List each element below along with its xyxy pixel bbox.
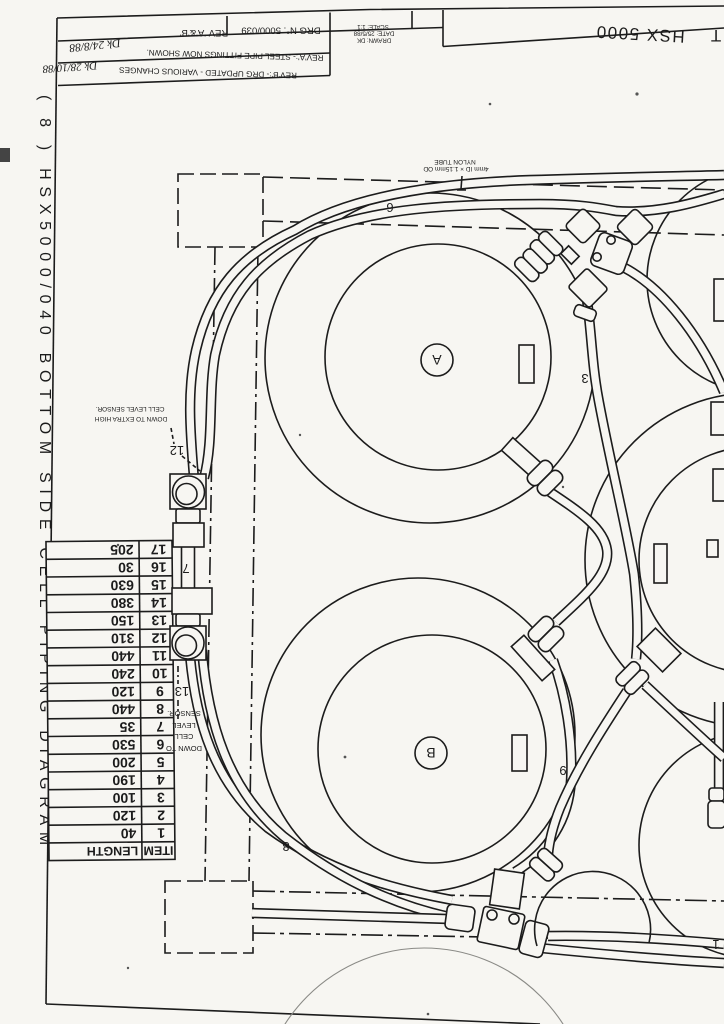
svg-text:13: 13: [175, 684, 189, 699]
svg-text:7: 7: [182, 561, 189, 576]
svg-text:17: 17: [150, 542, 166, 558]
svg-text:15: 15: [151, 577, 167, 593]
svg-text:T: T: [711, 26, 721, 45]
svg-text:A: A: [432, 352, 442, 368]
svg-text:100: 100: [112, 790, 136, 806]
svg-text:DRG N°. 5000/039: DRG N°. 5000/039: [241, 25, 320, 36]
svg-text:B: B: [426, 745, 435, 761]
svg-text:310: 310: [111, 631, 135, 647]
svg-text:120: 120: [111, 684, 135, 700]
svg-text:7: 7: [156, 719, 164, 735]
svg-text:LEVEL: LEVEL: [172, 721, 195, 730]
svg-text:205: 205: [110, 542, 134, 558]
svg-text:1: 1: [157, 825, 165, 841]
svg-text:DATE: 25/5/88: DATE: 25/5/88: [353, 29, 394, 36]
svg-text:CELL: CELL: [175, 732, 194, 741]
svg-text:9: 9: [156, 683, 164, 699]
svg-text:8: 8: [282, 839, 289, 854]
svg-text:630: 630: [110, 577, 134, 593]
svg-text:240: 240: [111, 666, 135, 682]
svg-text:30: 30: [118, 560, 134, 576]
svg-text:40: 40: [120, 825, 136, 841]
svg-text:190: 190: [112, 772, 136, 788]
svg-text:LENGTH: LENGTH: [87, 844, 139, 858]
svg-text:6: 6: [386, 200, 393, 215]
svg-text:14: 14: [151, 595, 167, 611]
svg-text:NYLON TUBE: NYLON TUBE: [434, 158, 476, 165]
svg-text:440: 440: [111, 701, 135, 717]
svg-text:2: 2: [157, 807, 165, 823]
svg-text:530: 530: [112, 737, 136, 753]
svg-text:REV 'A'&'B': REV 'A'&'B': [180, 27, 229, 38]
svg-text:380: 380: [110, 595, 134, 611]
svg-text:200: 200: [112, 755, 136, 771]
svg-text:12: 12: [170, 443, 184, 458]
svg-text:4: 4: [157, 772, 165, 788]
svg-text:8: 8: [156, 701, 164, 717]
svg-text:CELL LEVEL SENSOR.: CELL LEVEL SENSOR.: [95, 405, 164, 412]
svg-text:DOWN TO: DOWN TO: [166, 744, 202, 753]
svg-text:REV'A':- STEEL PIPE FITTINGS N: REV'A':- STEEL PIPE FITTINGS NOW SHOWN.: [146, 48, 323, 63]
svg-text:SENSOR.: SENSOR.: [167, 709, 201, 718]
svg-text:DOWN TO EXTRA HIGH: DOWN TO EXTRA HIGH: [95, 415, 168, 422]
svg-text:35: 35: [119, 719, 135, 735]
svg-text:3: 3: [157, 790, 165, 806]
svg-text:10: 10: [152, 666, 168, 682]
svg-text:3: 3: [581, 371, 588, 386]
svg-text:11: 11: [152, 648, 167, 664]
svg-text:4mm ID × 1.15mm OD: 4mm ID × 1.15mm OD: [423, 165, 488, 172]
svg-text:120: 120: [112, 808, 136, 824]
svg-text:1: 1: [712, 937, 719, 952]
svg-text:9: 9: [559, 763, 566, 778]
svg-text:ITEM: ITEM: [143, 843, 173, 857]
svg-text:Dk 28/10/88: Dk 28/10/88: [42, 59, 99, 75]
svg-text:REV'B':- DRG UPDATED - VARIOUS: REV'B':- DRG UPDATED - VARIOUS CHANGES: [118, 65, 297, 80]
svg-text:440: 440: [111, 648, 135, 664]
svg-text:HSX 5000: HSX 5000: [595, 22, 685, 46]
svg-text:5: 5: [156, 754, 164, 770]
svg-text:150: 150: [111, 613, 135, 629]
svg-text:6: 6: [156, 737, 164, 753]
svg-text:13: 13: [151, 612, 167, 628]
svg-text:SCALE: 1:1: SCALE: 1:1: [357, 23, 389, 29]
svg-text:16: 16: [151, 559, 167, 575]
svg-text:DRAWN: DK: DRAWN: DK: [357, 37, 391, 43]
svg-text:12: 12: [151, 630, 167, 646]
